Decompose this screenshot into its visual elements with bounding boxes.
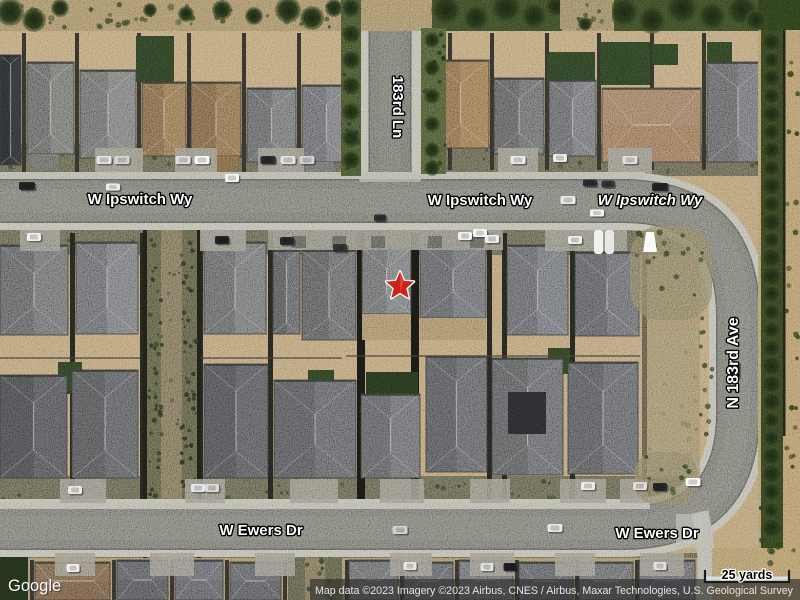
svg-text:W Ipswitch Wy: W Ipswitch Wy	[598, 192, 703, 209]
svg-text:W Ewers Dr: W Ewers Dr	[219, 522, 303, 539]
svg-text:183rd Ln: 183rd Ln	[389, 76, 406, 139]
svg-text:Google: Google	[8, 577, 61, 595]
svg-text:W Ipswitch Wy: W Ipswitch Wy	[428, 192, 533, 209]
svg-text:W Ipswitch Wy: W Ipswitch Wy	[88, 191, 193, 208]
svg-text:25 yards: 25 yards	[722, 568, 773, 582]
svg-text:N 183rd Ave: N 183rd Ave	[725, 317, 742, 408]
svg-text:W Ewers Dr: W Ewers Dr	[615, 525, 699, 542]
svg-text:Map data ©2023 Imagery ©2023 A: Map data ©2023 Imagery ©2023 Airbus, CNE…	[315, 585, 793, 597]
